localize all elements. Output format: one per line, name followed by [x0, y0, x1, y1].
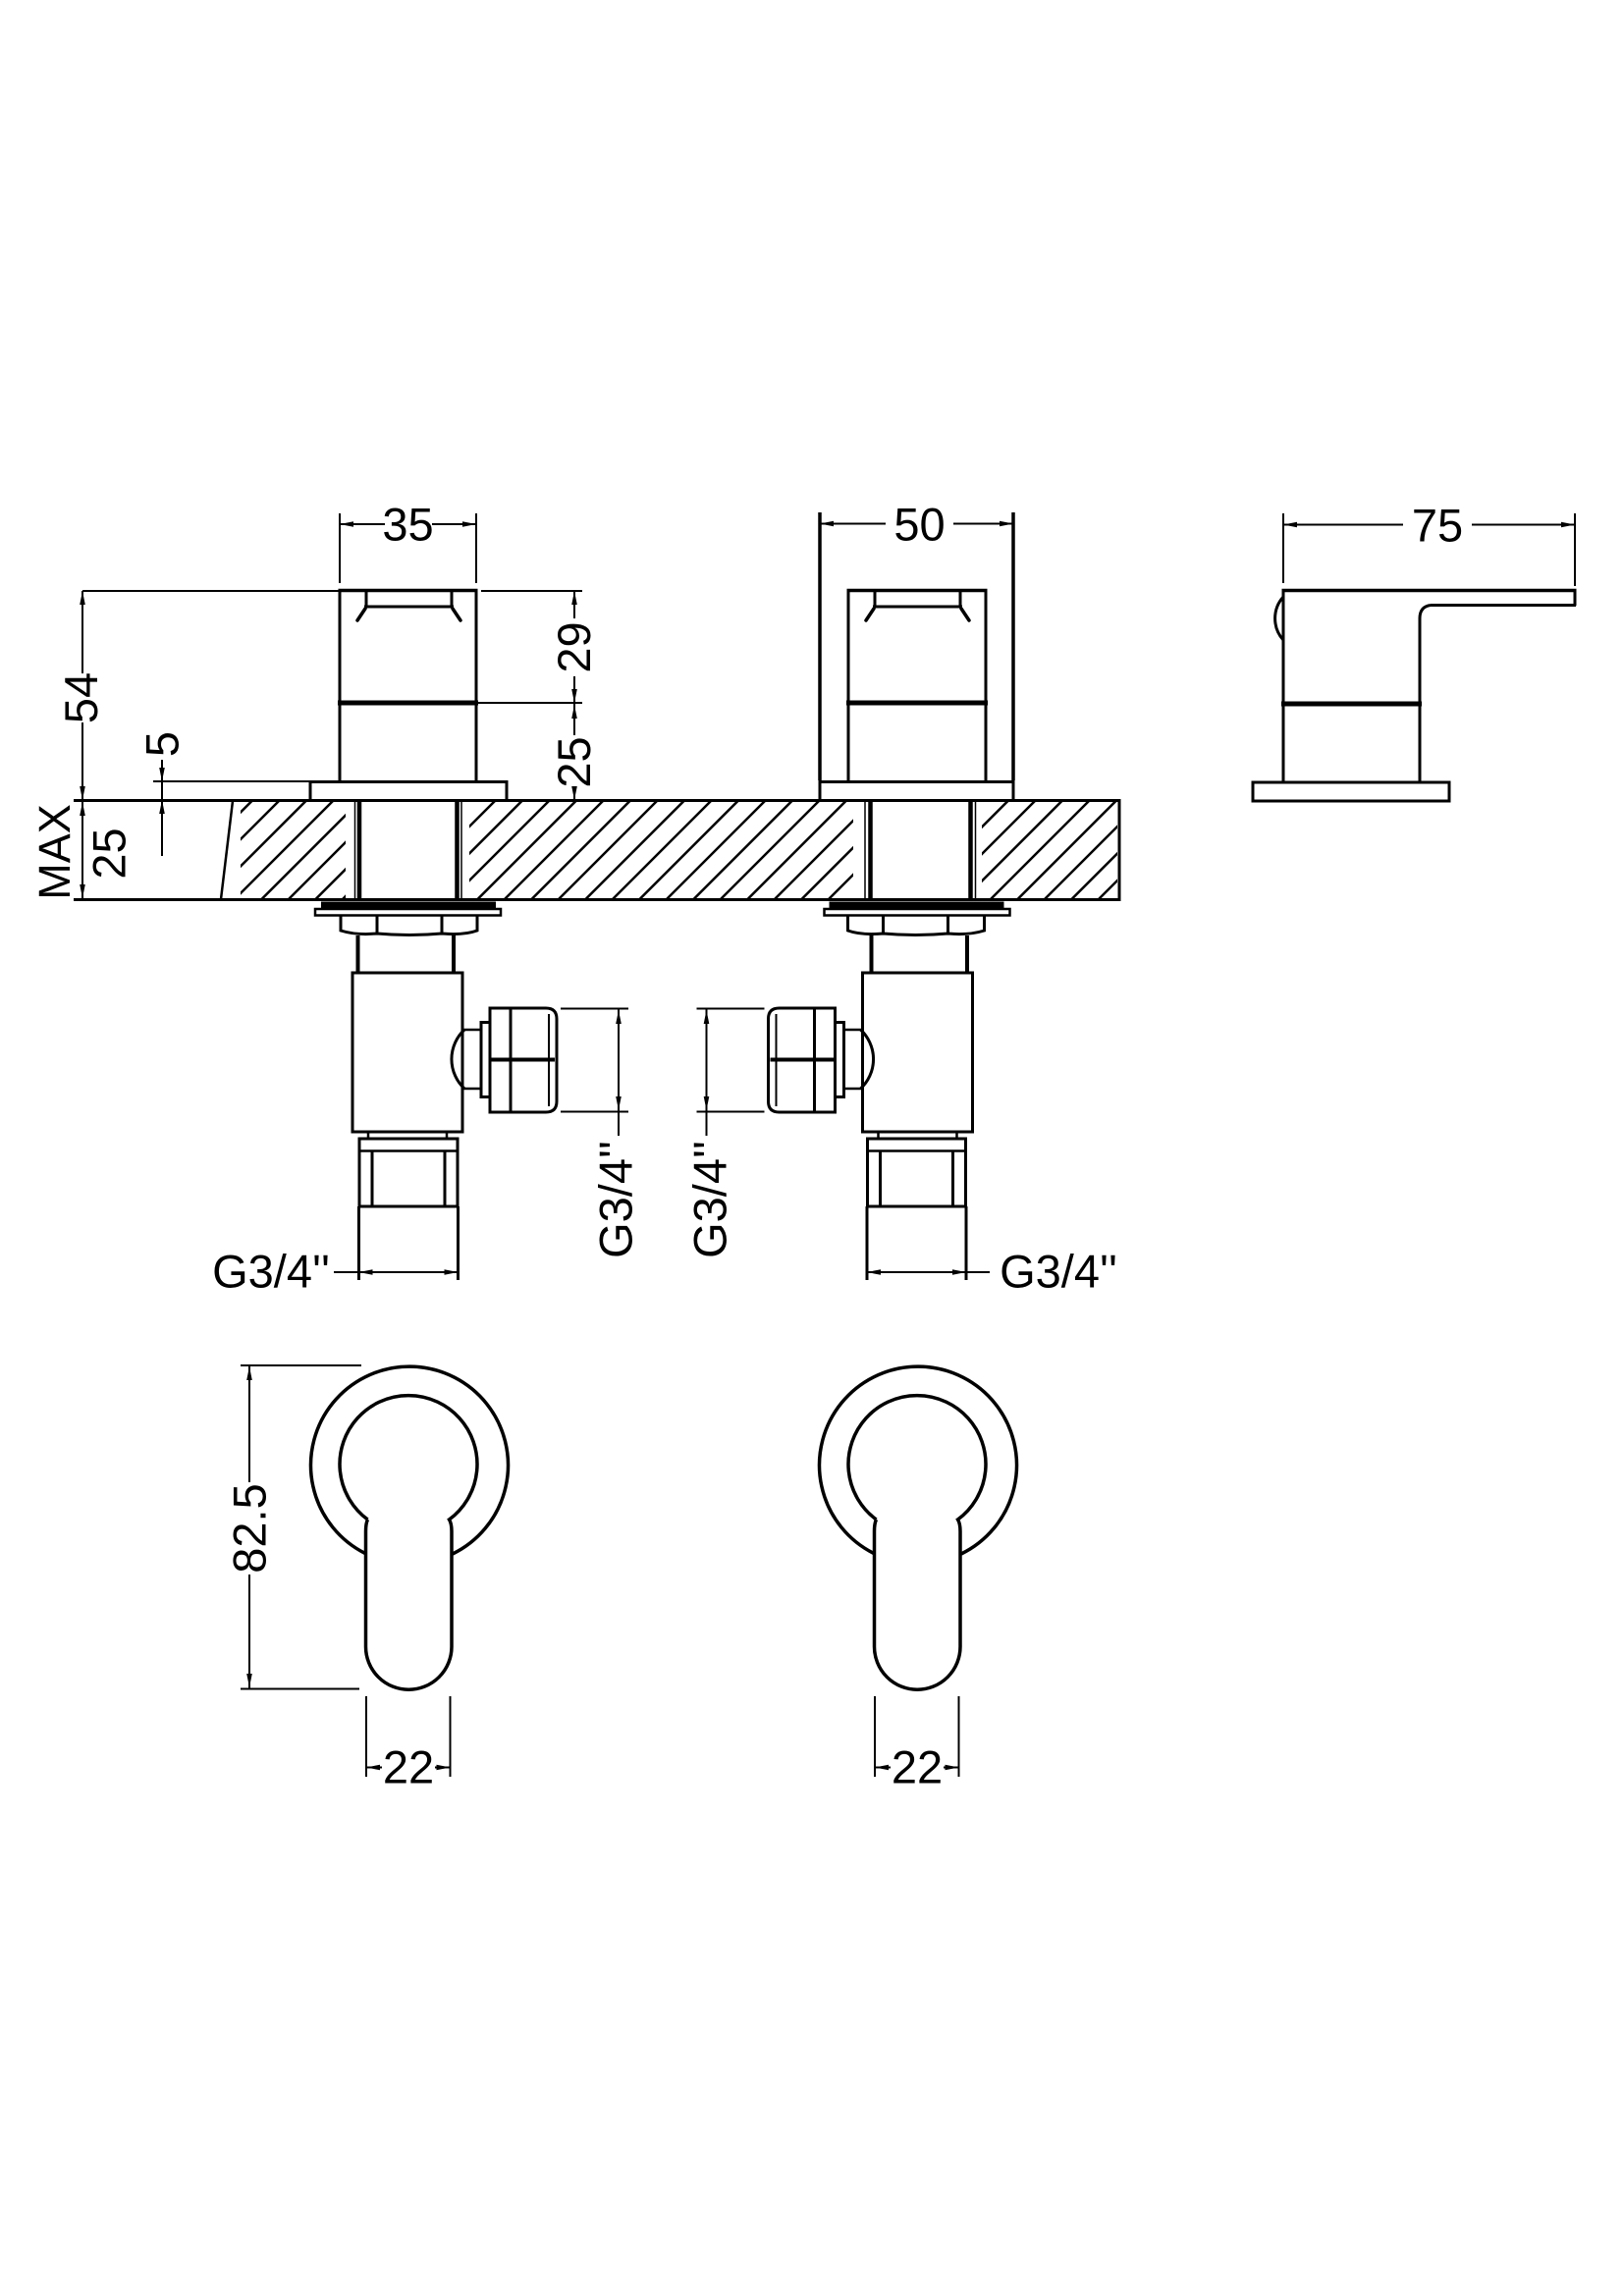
svg-text:5: 5	[136, 731, 189, 757]
svg-text:22: 22	[892, 1741, 943, 1793]
svg-text:G3/4'': G3/4''	[212, 1246, 330, 1298]
svg-text:25: 25	[83, 828, 135, 879]
svg-text:75: 75	[1412, 500, 1463, 552]
svg-text:29: 29	[548, 621, 600, 672]
svg-text:35: 35	[382, 499, 433, 551]
svg-text:82.5: 82.5	[224, 1483, 276, 1573]
svg-text:54: 54	[55, 672, 107, 723]
svg-text:50: 50	[893, 499, 945, 551]
svg-text:G3/4'': G3/4''	[590, 1141, 642, 1258]
svg-text:22: 22	[383, 1741, 434, 1793]
svg-text:MAX: MAX	[29, 804, 80, 900]
svg-text:G3/4'': G3/4''	[684, 1141, 736, 1258]
svg-text:25: 25	[548, 736, 600, 787]
svg-text:G3/4'': G3/4''	[1000, 1246, 1117, 1298]
